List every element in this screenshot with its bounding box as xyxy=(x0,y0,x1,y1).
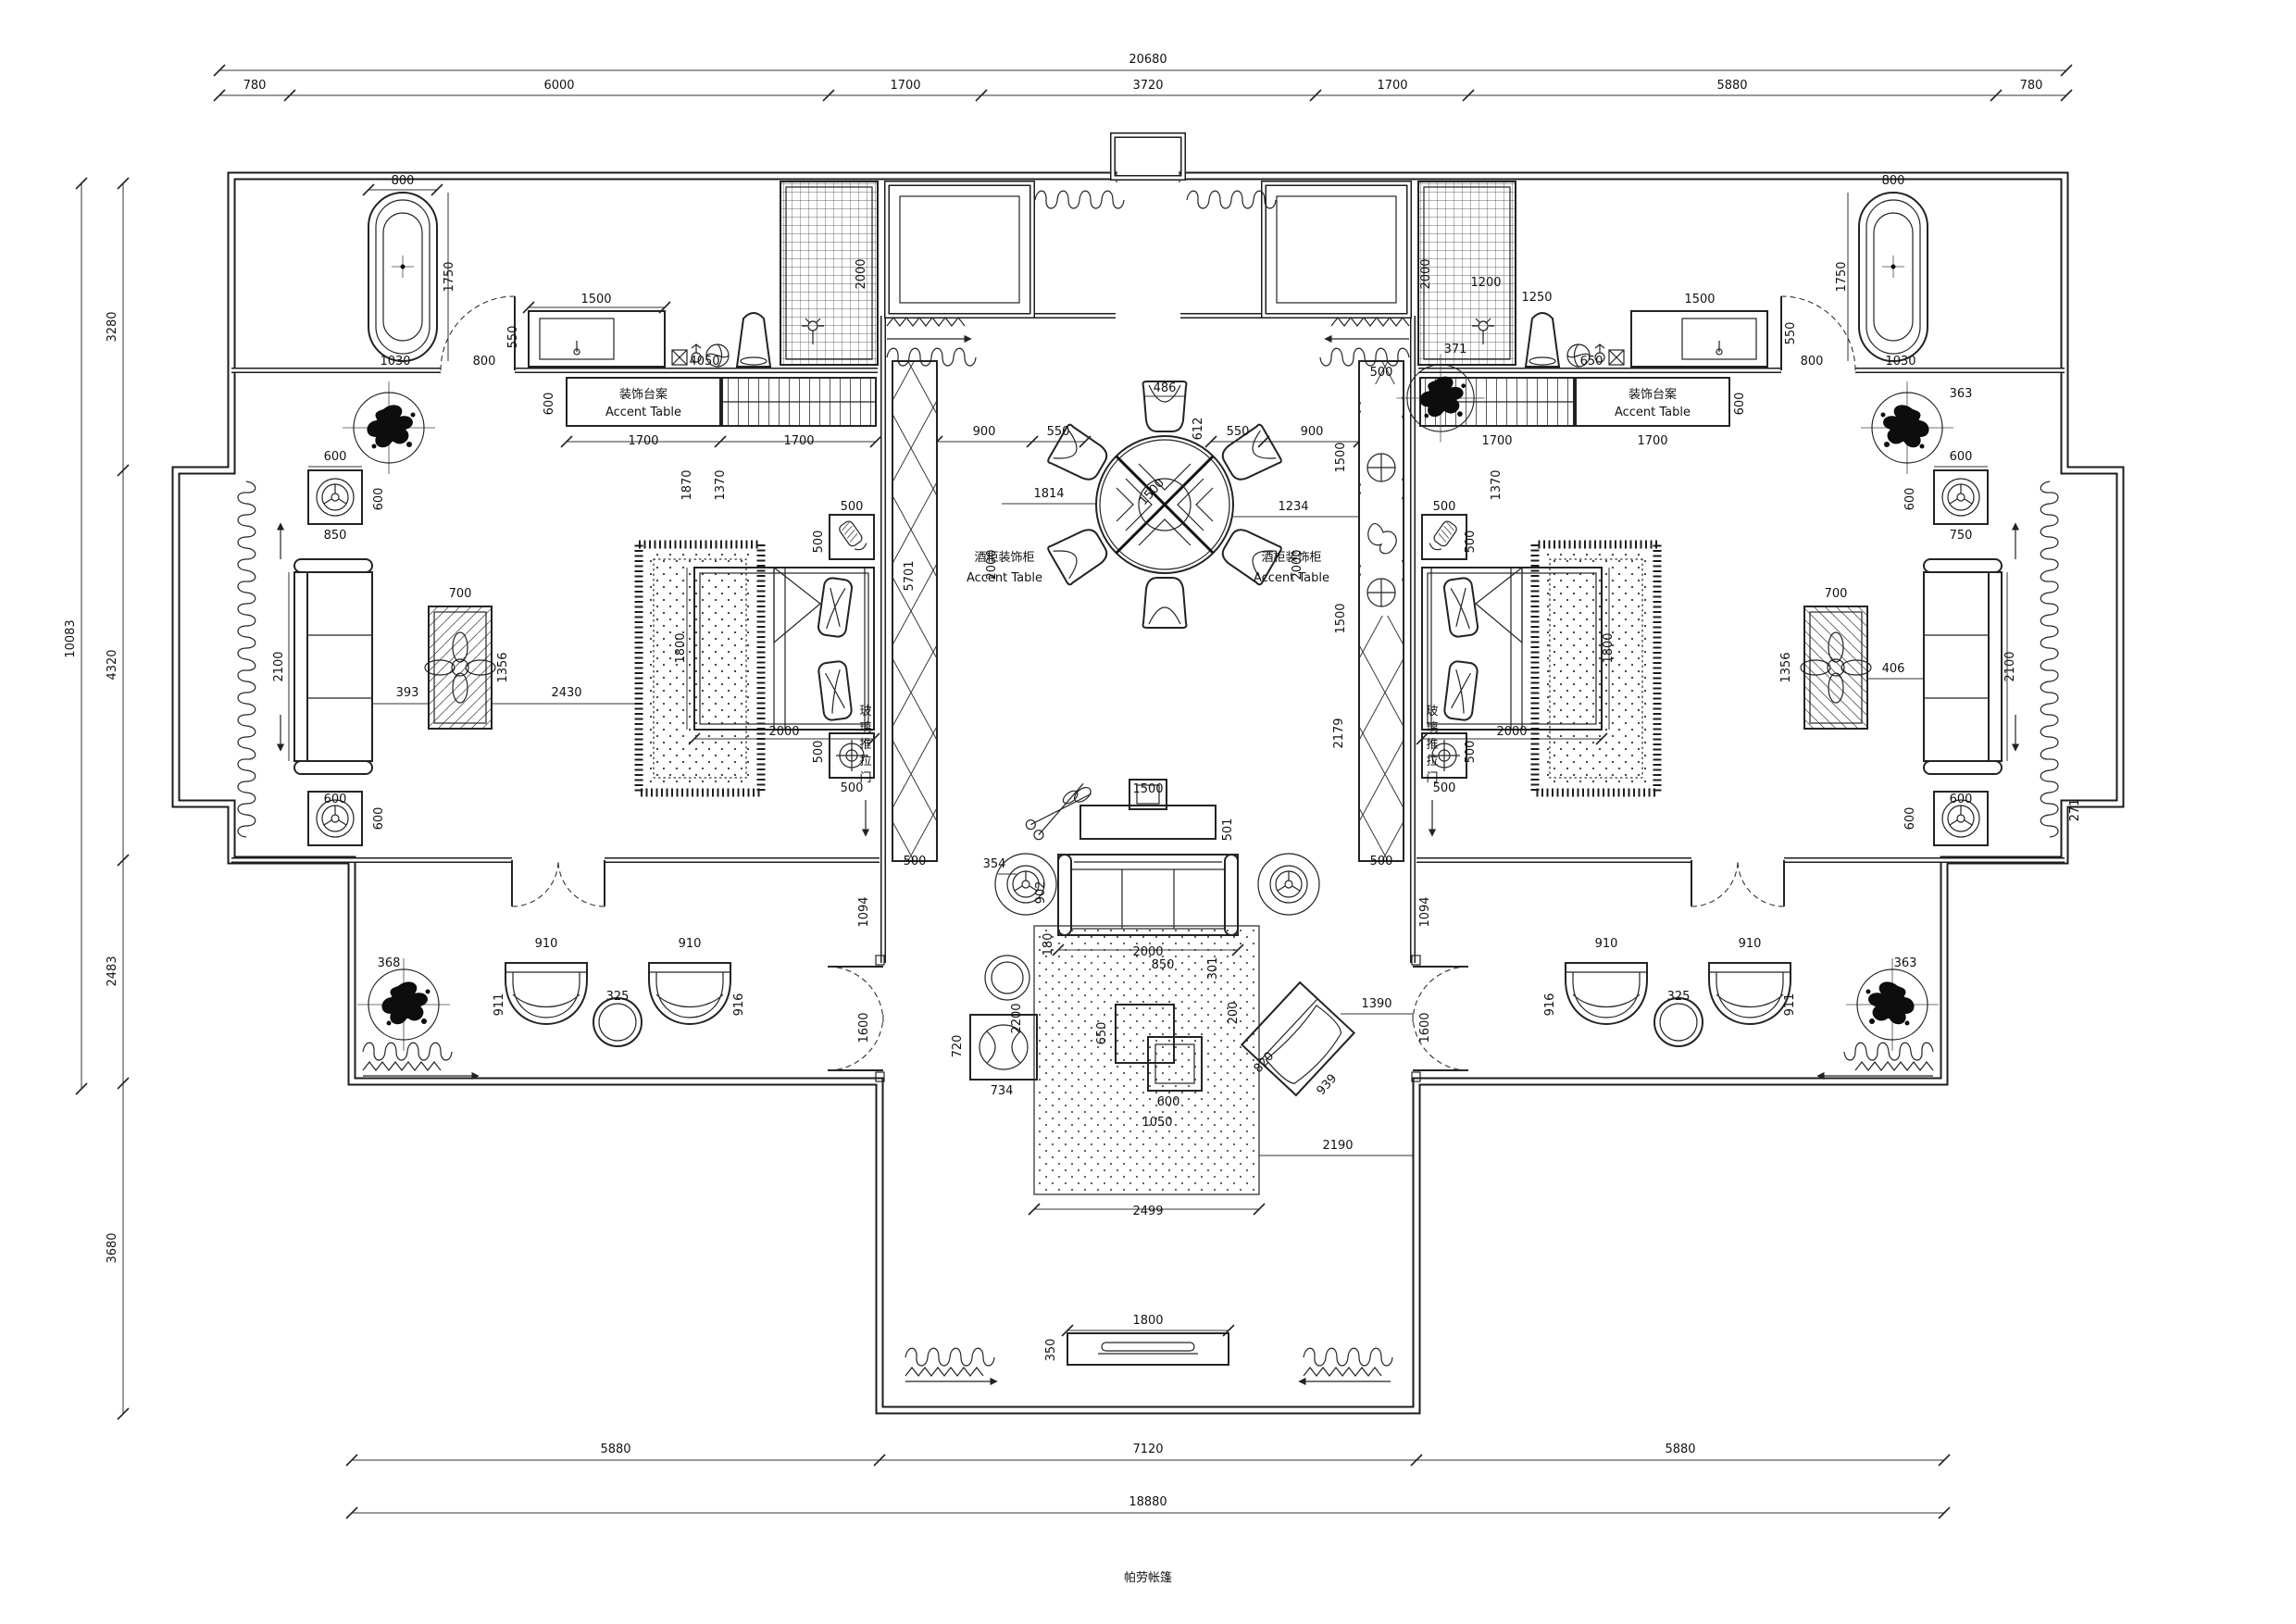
dim-label: 4320 xyxy=(106,649,119,680)
dim-label: 500 xyxy=(1370,366,1393,380)
dim-label: 500 xyxy=(1464,741,1478,764)
dim-label: 1234 xyxy=(1278,500,1308,514)
dim-label: 2200 xyxy=(1010,1003,1024,1033)
dim-label: 612 xyxy=(1192,418,1205,441)
dim-label: 180 xyxy=(1042,933,1055,956)
wine-cabinet xyxy=(887,318,976,861)
dim-label: 800 xyxy=(1801,355,1824,369)
suite-left xyxy=(231,181,1116,1081)
living-rug xyxy=(1034,926,1259,1194)
laundry-hamper xyxy=(737,313,770,367)
dim-label: 550 xyxy=(1227,425,1250,439)
room-label-wine-cabinet-left-en: Accent Table xyxy=(967,571,1042,585)
dim-label: 700 xyxy=(449,587,472,601)
dim-label: 3720 xyxy=(1132,79,1163,93)
terrace-chair xyxy=(505,963,587,1024)
terrace-table xyxy=(593,998,642,1046)
dim-label: 301 xyxy=(1206,957,1220,981)
dim-label: 5880 xyxy=(1665,1443,1695,1456)
dim-label: 2483 xyxy=(106,956,119,986)
dim-label: 910 xyxy=(535,937,558,951)
dim-label: 650 xyxy=(1580,355,1603,369)
glass-door-label-right: 玻璃推拉门 xyxy=(1426,705,1438,785)
dim-label: 750 xyxy=(1950,529,1973,543)
dim-label: 1030 xyxy=(380,355,410,369)
dim-label: 1500 xyxy=(1334,603,1348,633)
dim-label: 7120 xyxy=(1132,1443,1163,1456)
dim-label: 600 xyxy=(324,450,347,464)
dim-label: 550 xyxy=(1047,425,1070,439)
dim-label: 500 xyxy=(1464,531,1478,554)
dim-label: 1500 xyxy=(1684,293,1715,306)
dim-label: 780 xyxy=(243,79,267,93)
bathtub xyxy=(368,193,437,361)
dim-label: 1356 xyxy=(1779,652,1793,682)
terrace-doors xyxy=(512,860,605,906)
dim-label: 406 xyxy=(1882,662,1905,676)
dim-label: 850 xyxy=(324,529,347,543)
dim-label: 600 xyxy=(543,393,556,416)
dim-label: 5880 xyxy=(1716,79,1747,93)
dim-label: 6000 xyxy=(543,79,574,93)
dim-label: 800 xyxy=(1882,174,1905,188)
entry-closet xyxy=(887,183,1032,316)
dim-label: 1700 xyxy=(1481,434,1512,448)
dim-label: 2430 xyxy=(551,686,581,700)
tv-console xyxy=(1067,1333,1229,1365)
dim-label: 2499 xyxy=(1132,1205,1163,1218)
fire-tools xyxy=(1024,779,1095,842)
dim-label: 916 xyxy=(1543,993,1557,1017)
dim-label: 900 xyxy=(973,425,996,439)
dim-label: 2179 xyxy=(1332,718,1346,748)
dim-label: 1600 xyxy=(857,1012,871,1043)
dim-label: 720 xyxy=(951,1035,965,1058)
dim-label: 850 xyxy=(1152,958,1175,972)
dim-label: 2000 xyxy=(1132,945,1163,959)
dim-label: 902 xyxy=(1034,881,1048,905)
floor-plan-drawing: 2068078060001700372017005880780100833280… xyxy=(0,0,2296,1624)
living-sofa xyxy=(1058,855,1238,935)
dim-label: 911 xyxy=(493,993,506,1017)
dim-label: 1800 xyxy=(1132,1314,1163,1328)
dim-label: 910 xyxy=(1739,937,1762,951)
room-label-wine-cabinet-left-zh: 酒柜装饰柜 xyxy=(974,551,1034,565)
dining-table xyxy=(1096,436,1233,573)
dim-label: 4050 xyxy=(689,355,719,369)
dim-label: 325 xyxy=(1667,990,1691,1004)
ottoman xyxy=(970,1015,1037,1080)
entry-curtain xyxy=(1035,191,1124,208)
dim-label: 393 xyxy=(396,686,419,700)
dim-label: 916 xyxy=(732,993,746,1017)
drawing-title: 帕劳帐篷 xyxy=(1124,1570,1172,1585)
dim-label: 1094 xyxy=(1418,896,1432,927)
dim-label: 1200 xyxy=(1470,276,1501,290)
dim-label: 1500 xyxy=(580,293,611,306)
dim-label: 1600 xyxy=(1418,1012,1432,1043)
dim-label: 1500 xyxy=(1334,442,1348,472)
dim-label: 1700 xyxy=(1377,79,1407,93)
dim-label: 500 xyxy=(904,855,927,868)
dim-label: 1814 xyxy=(1033,487,1064,501)
dim-label: 500 xyxy=(812,741,826,764)
terrace-plant xyxy=(357,958,450,1051)
dim-label: 1750 xyxy=(443,261,456,292)
sofa xyxy=(294,559,372,774)
dim-label: 700 xyxy=(1825,587,1848,601)
dim-label: 600 xyxy=(1903,488,1917,511)
room-label-accent-table-right-en: Accent Table xyxy=(1615,406,1691,419)
dim-label: 910 xyxy=(679,937,702,951)
dim-label: 600 xyxy=(1950,450,1973,464)
terrace-curtain xyxy=(363,1043,478,1076)
dim-label: 1800 xyxy=(1602,632,1616,663)
glass-door-label-left: 玻璃推拉门 xyxy=(859,705,871,785)
dim-label: 1390 xyxy=(1361,997,1391,1011)
dim-left-total: 10083 xyxy=(64,619,78,657)
dim-label: 200 xyxy=(1227,1002,1241,1025)
dim-label: 1500 xyxy=(1132,782,1163,796)
dim-label: 1370 xyxy=(1490,469,1504,500)
dim-label: 550 xyxy=(1784,322,1798,345)
side-table xyxy=(308,470,362,845)
dim-label: 1094 xyxy=(857,896,871,927)
dim-label: 600 xyxy=(1733,393,1747,416)
dim-label: 1870 xyxy=(680,469,694,500)
dim-label: 1800 xyxy=(674,632,688,663)
dim-label: 600 xyxy=(1950,793,1973,806)
dim-label: 1700 xyxy=(890,79,920,93)
dim-label: 5880 xyxy=(600,1443,630,1456)
dim-top-total: 20680 xyxy=(1129,53,1167,67)
dim-label: 1356 xyxy=(496,652,510,682)
dim-label: 650 xyxy=(1095,1022,1109,1045)
entry-plant xyxy=(1397,355,1485,443)
room-label-wine-cabinet-right-en: Accent Table xyxy=(1254,571,1329,585)
dim-label: 1250 xyxy=(1521,291,1552,305)
dim-label: 600 xyxy=(324,793,347,806)
dining-chair xyxy=(1143,578,1187,628)
dim-label: 5701 xyxy=(903,560,917,591)
dim-label: 1700 xyxy=(628,434,658,448)
dim-label: 363 xyxy=(1894,956,1917,970)
dim-label: 325 xyxy=(606,990,630,1004)
dim-label: 1030 xyxy=(1885,355,1915,369)
dim-label: 800 xyxy=(473,355,496,369)
dim-label: 2100 xyxy=(2003,651,2017,681)
dim-label: 354 xyxy=(983,857,1006,871)
walls xyxy=(176,135,2120,1410)
dim-label: 3280 xyxy=(106,311,119,342)
room-label-wine-cabinet-right-zh: 酒柜装饰柜 xyxy=(1261,551,1321,565)
dim-label: 501 xyxy=(1221,818,1235,842)
dim-label: 600 xyxy=(372,807,386,831)
dim-label: 550 xyxy=(506,326,520,349)
dim-label: 2190 xyxy=(1322,1139,1353,1153)
dim-label: 271 xyxy=(2068,799,2082,822)
floor-plan-page: 2068078060001700372017005880780100833280… xyxy=(0,0,2296,1624)
room-label-accent-table-left-en: Accent Table xyxy=(605,406,681,419)
dim-label: 368 xyxy=(378,956,401,970)
dim-label: 734 xyxy=(991,1084,1014,1098)
dim-label: 3680 xyxy=(106,1232,119,1263)
dim-label: 1370 xyxy=(714,469,728,500)
dim-label: 939 xyxy=(1315,1071,1341,1097)
coffee-table xyxy=(425,606,495,729)
dim-label: 600 xyxy=(372,488,386,511)
dim-label: 486 xyxy=(1154,381,1177,395)
corridor-doors xyxy=(828,956,884,1081)
dim-label: 500 xyxy=(812,531,826,554)
dim-label: 500 xyxy=(1370,855,1393,868)
dim-label: 363 xyxy=(1950,387,1973,401)
dim-label: 371 xyxy=(1444,343,1467,356)
suite-right xyxy=(1180,181,2065,1081)
dim-label: 2000 xyxy=(768,725,799,739)
dim-label: 600 xyxy=(1157,1095,1180,1109)
dim-label: 2100 xyxy=(272,651,286,681)
dim-label: 1050 xyxy=(1142,1116,1172,1130)
terrace-chair xyxy=(649,963,730,1024)
dim-label: 1750 xyxy=(1835,261,1849,292)
dim-label: 911 xyxy=(1783,993,1797,1017)
dim-label: 2000 xyxy=(855,258,868,289)
dim-label: 600 xyxy=(1903,807,1917,831)
annotations: 2068078060001700372017005880780100833280… xyxy=(64,53,2082,1509)
dim-label: 1700 xyxy=(1637,434,1667,448)
dim-label: 800 xyxy=(392,174,415,188)
dim-label: 2000 xyxy=(1496,725,1527,739)
plant xyxy=(343,381,435,474)
room-label-accent-table-left-zh: 装饰台案 xyxy=(619,388,668,402)
dim-label: 500 xyxy=(1433,500,1456,514)
dim-label: 910 xyxy=(1595,937,1618,951)
dim-label: 350 xyxy=(1044,1339,1058,1362)
dim-label: 1700 xyxy=(783,434,814,448)
dim-label: 2000 xyxy=(1419,258,1433,289)
room-label-accent-table-right-zh: 装饰台案 xyxy=(1628,388,1677,402)
dim-label: 900 xyxy=(1301,425,1324,439)
vanity-sink xyxy=(529,311,665,367)
dim-label: 500 xyxy=(841,500,864,514)
dim-label: 780 xyxy=(2020,79,2043,93)
dim-bottom-total: 18880 xyxy=(1129,1495,1167,1509)
